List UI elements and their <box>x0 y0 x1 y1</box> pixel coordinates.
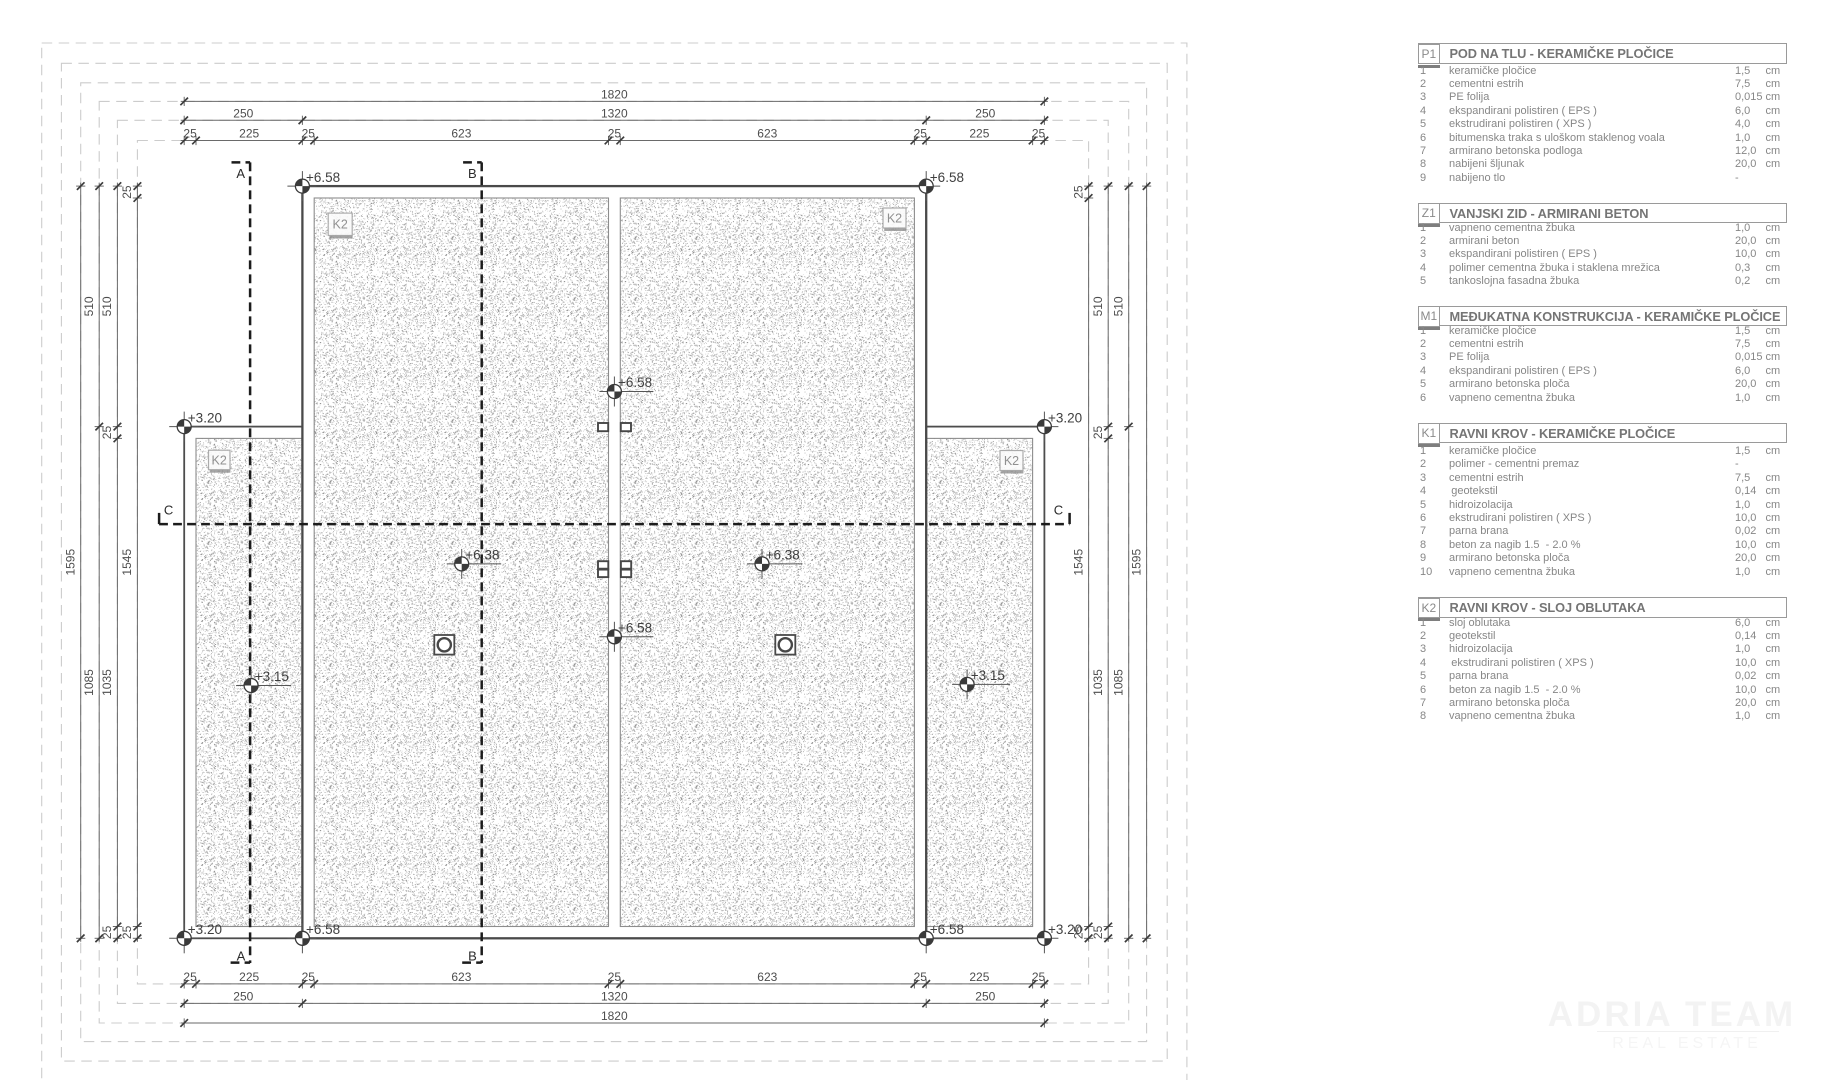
svg-text:+6.58: +6.58 <box>930 922 964 937</box>
svg-text:K2: K2 <box>212 453 227 467</box>
svg-text:1085: 1085 <box>1111 669 1125 696</box>
svg-text:+3.20: +3.20 <box>1048 410 1082 425</box>
svg-text:B: B <box>468 948 477 963</box>
svg-text:A: A <box>237 948 246 963</box>
svg-text:1035: 1035 <box>100 669 114 696</box>
svg-text:25: 25 <box>183 970 197 984</box>
svg-text:25: 25 <box>183 127 197 141</box>
svg-text:623: 623 <box>757 970 777 984</box>
svg-text:623: 623 <box>451 970 471 984</box>
svg-text:1545: 1545 <box>120 549 134 576</box>
svg-text:623: 623 <box>451 127 471 141</box>
svg-text:250: 250 <box>233 990 253 1004</box>
svg-text:25: 25 <box>120 185 134 199</box>
svg-text:250: 250 <box>975 107 995 121</box>
svg-text:623: 623 <box>757 127 777 141</box>
svg-text:1595: 1595 <box>1129 549 1143 576</box>
svg-text:225: 225 <box>969 970 989 984</box>
svg-text:+6.58: +6.58 <box>618 375 652 390</box>
svg-text:25: 25 <box>608 127 622 141</box>
svg-text:REAL ESTATE: REAL ESTATE <box>1612 1035 1762 1052</box>
svg-text:K2: K2 <box>887 211 902 225</box>
svg-text:250: 250 <box>233 107 253 121</box>
svg-text:1320: 1320 <box>601 990 628 1004</box>
svg-text:+6.58: +6.58 <box>306 922 340 937</box>
svg-text:1085: 1085 <box>82 669 96 696</box>
svg-text:225: 225 <box>969 127 989 141</box>
svg-text:510: 510 <box>100 296 114 316</box>
svg-text:+3.15: +3.15 <box>971 668 1005 683</box>
svg-text:25: 25 <box>608 970 622 984</box>
svg-text:25: 25 <box>1032 127 1046 141</box>
svg-text:25: 25 <box>100 925 114 939</box>
svg-text:510: 510 <box>82 296 96 316</box>
svg-text:25: 25 <box>302 127 316 141</box>
svg-text:C: C <box>164 502 173 517</box>
svg-text:+6.38: +6.38 <box>465 548 499 563</box>
svg-text:25: 25 <box>1091 426 1105 440</box>
svg-text:510: 510 <box>1091 296 1105 316</box>
svg-text:225: 225 <box>239 127 259 141</box>
svg-text:1545: 1545 <box>1071 549 1085 576</box>
svg-text:ADRIA TEAM: ADRIA TEAM <box>1548 995 1796 1034</box>
svg-text:510: 510 <box>1111 296 1125 316</box>
svg-text:250: 250 <box>975 990 995 1004</box>
svg-text:+3.20: +3.20 <box>188 922 222 937</box>
svg-text:25: 25 <box>914 970 928 984</box>
svg-text:25: 25 <box>1032 970 1046 984</box>
svg-text:25: 25 <box>1071 185 1085 199</box>
svg-text:+3.20: +3.20 <box>1048 922 1082 937</box>
svg-text:A: A <box>236 166 245 181</box>
svg-text:B: B <box>468 166 477 181</box>
svg-text:25: 25 <box>914 127 928 141</box>
svg-text:+6.58: +6.58 <box>618 621 652 636</box>
svg-text:+6.58: +6.58 <box>930 170 964 185</box>
svg-text:1820: 1820 <box>601 88 628 102</box>
svg-text:25: 25 <box>1091 925 1105 939</box>
svg-text:K2: K2 <box>1004 454 1019 468</box>
svg-text:+6.38: +6.38 <box>766 548 800 563</box>
svg-text:25: 25 <box>100 426 114 440</box>
svg-text:1035: 1035 <box>1091 669 1105 696</box>
svg-text:1820: 1820 <box>601 1009 628 1023</box>
svg-text:K2: K2 <box>333 218 348 232</box>
svg-text:1595: 1595 <box>63 549 77 576</box>
svg-text:+6.58: +6.58 <box>306 170 340 185</box>
svg-text:+3.15: +3.15 <box>255 669 289 684</box>
svg-text:25: 25 <box>120 925 134 939</box>
svg-text:1320: 1320 <box>601 107 628 121</box>
svg-text:25: 25 <box>302 970 316 984</box>
svg-text:+3.20: +3.20 <box>188 410 222 425</box>
svg-text:C: C <box>1054 502 1063 517</box>
svg-text:225: 225 <box>239 970 259 984</box>
